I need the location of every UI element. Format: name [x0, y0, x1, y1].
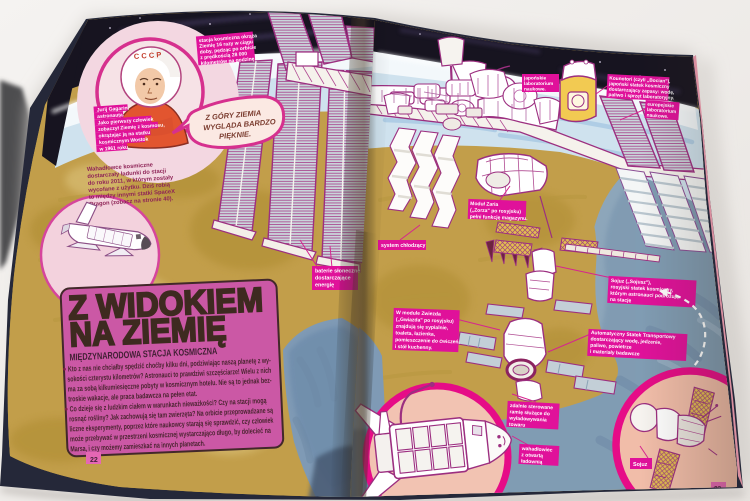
svg-text:energię: energię	[315, 283, 334, 289]
svg-text:C C C P: C C C P	[134, 50, 162, 61]
svg-text:22: 22	[90, 457, 98, 464]
